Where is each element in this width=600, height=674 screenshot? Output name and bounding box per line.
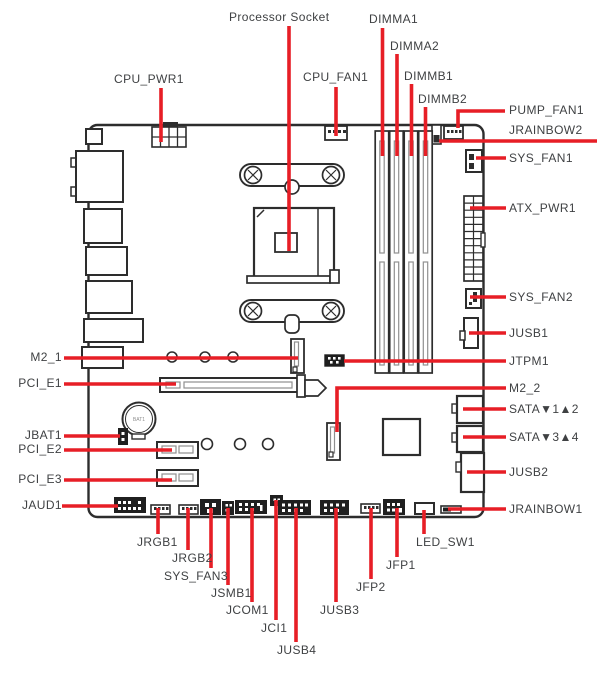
label-dimmb2: DIMMB2 — [418, 93, 467, 106]
label-jcom1: JCOM1 — [226, 604, 269, 617]
label-jfp2: JFP2 — [356, 581, 386, 594]
label-pci-e3: PCI_E3 — [0, 473, 62, 486]
label-sata-3-4: SATA▼3▲4 — [509, 431, 579, 444]
label-pump-fan1: PUMP_FAN1 — [509, 104, 584, 117]
label-cpu-pwr1: CPU_PWR1 — [114, 73, 184, 86]
label-jbat1: JBAT1 — [0, 429, 62, 442]
label-jaud1: JAUD1 — [0, 499, 62, 512]
battery-label: BAT1 — [133, 417, 145, 423]
label-m2-1: M2_1 — [0, 351, 62, 364]
label-jusb4: JUSB4 — [277, 644, 316, 657]
label-sys-fan2: SYS_FAN2 — [509, 291, 573, 304]
label-jusb3: JUSB3 — [320, 604, 359, 617]
pci-e3-slot — [157, 470, 198, 486]
label-m2-2: M2_2 — [509, 382, 541, 395]
label-sys-fan3: SYS_FAN3 — [164, 570, 228, 583]
label-jci1: JCI1 — [261, 622, 287, 635]
label-jrainbow2: JRAINBOW2 — [509, 124, 583, 137]
motherboard-diagram-page: BAT1 — [0, 0, 600, 674]
label-jtpm1: JTPM1 — [509, 355, 549, 368]
label-sys-fan1: SYS_FAN1 — [509, 152, 573, 165]
label-led-sw1: LED_SW1 — [416, 536, 475, 549]
label-pci-e2: PCI_E2 — [0, 443, 62, 456]
label-jrgb1: JRGB1 — [137, 536, 178, 549]
label-atx-pwr1: ATX_PWR1 — [509, 202, 576, 215]
label-pci-e1: PCI_E1 — [0, 377, 62, 390]
pump-fan-connector — [444, 126, 463, 139]
sys-fan1-connector — [466, 150, 482, 172]
label-processor-socket: Processor Socket — [229, 11, 329, 24]
jbat1-jumper — [119, 429, 127, 444]
label-jrgb2: JRGB2 — [172, 552, 213, 565]
chipset — [383, 419, 420, 455]
label-dimma1: DIMMA1 — [369, 13, 418, 26]
cpu-power-connector — [152, 123, 186, 147]
label-jsmb1: JSMB1 — [211, 587, 252, 600]
label-jusb1: JUSB1 — [509, 327, 548, 340]
label-cpu-fan1: CPU_FAN1 — [303, 71, 368, 84]
sata-ports-3-4 — [452, 426, 483, 452]
label-dimmb1: DIMMB1 — [404, 70, 453, 83]
m2-1-connector — [291, 339, 304, 373]
label-sata-1-2: SATA▼1▲2 — [509, 403, 579, 416]
jrgb1-header — [151, 505, 170, 514]
label-jfp1: JFP1 — [386, 559, 416, 572]
label-jrainbow1: JRAINBOW1 — [509, 503, 583, 516]
label-jusb2: JUSB2 — [509, 466, 548, 479]
jfp1-header — [384, 500, 404, 514]
dimm-slots — [375, 131, 432, 373]
label-dimma2: DIMMA2 — [390, 40, 439, 53]
jtpm1-header — [325, 355, 344, 366]
jaud1-header — [115, 498, 145, 512]
